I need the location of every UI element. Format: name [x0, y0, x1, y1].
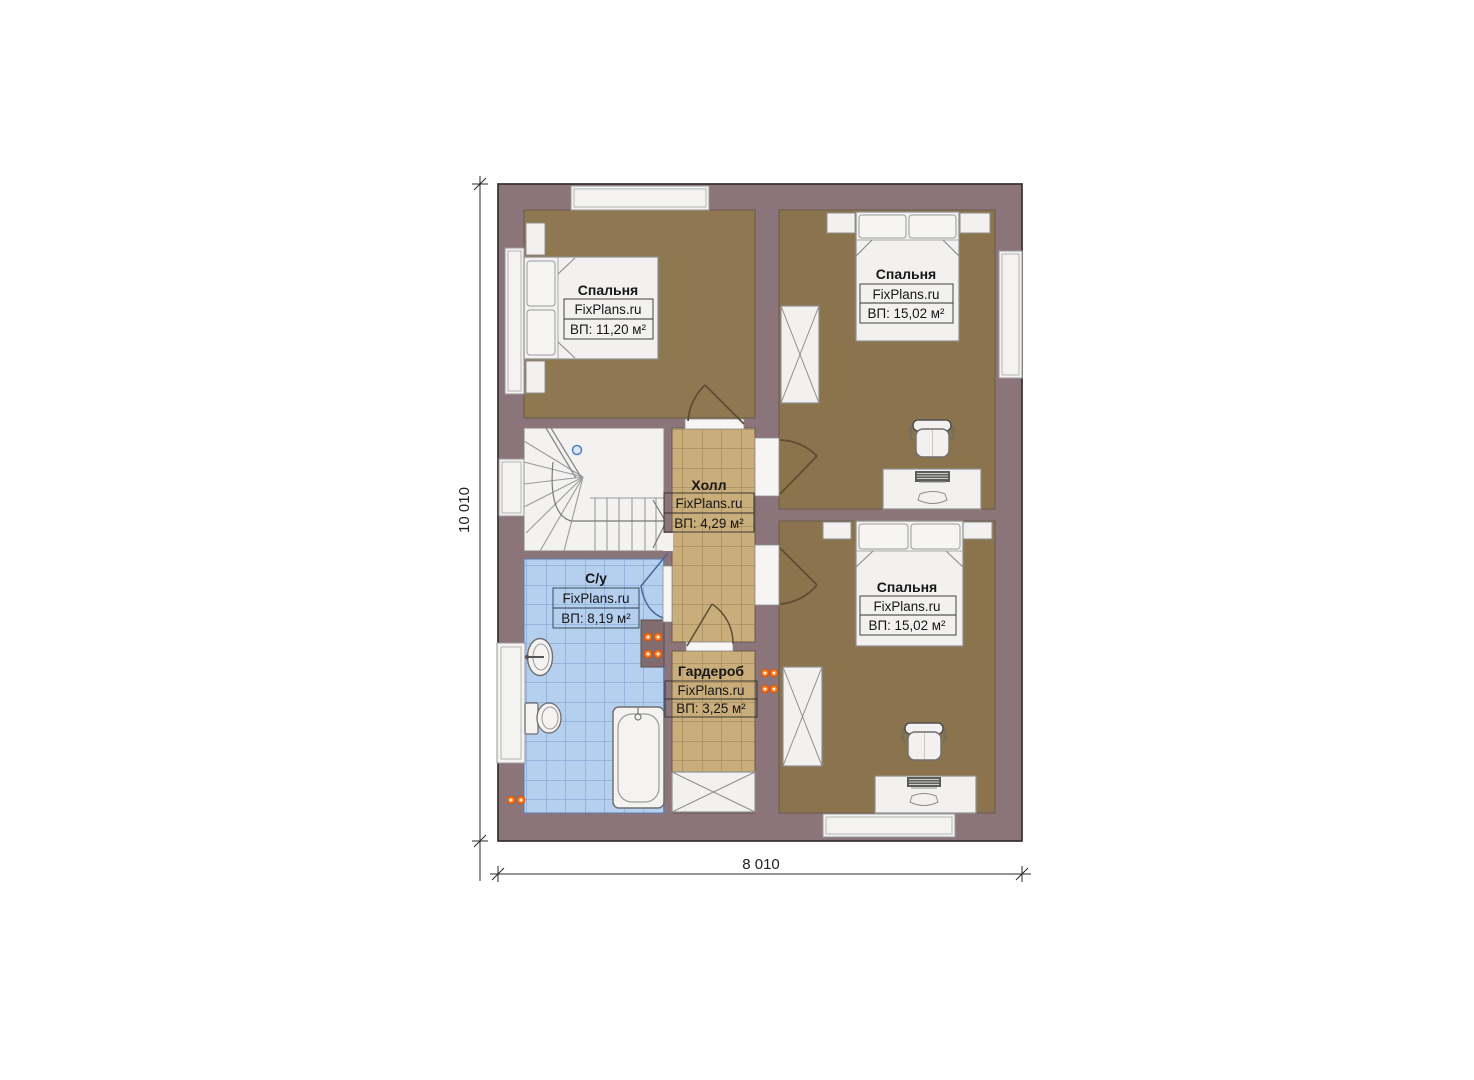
svg-text:Спальня: Спальня [876, 266, 936, 282]
svg-text:Холл: Холл [691, 477, 726, 493]
svg-text:FixPlans.ru: FixPlans.ru [676, 496, 743, 511]
svg-text:ВП: 3,25 м²: ВП: 3,25 м² [676, 701, 746, 716]
svg-text:Гардероб: Гардероб [678, 663, 745, 679]
svg-text:Спальня: Спальня [877, 579, 937, 595]
svg-text:FixPlans.ru: FixPlans.ru [873, 287, 940, 302]
svg-text:С/у: С/у [585, 570, 607, 586]
svg-text:ВП: 8,19 м²: ВП: 8,19 м² [561, 611, 631, 626]
svg-text:FixPlans.ru: FixPlans.ru [874, 599, 941, 614]
svg-text:ВП: 15,02 м²: ВП: 15,02 м² [868, 306, 945, 321]
svg-text:FixPlans.ru: FixPlans.ru [563, 591, 630, 606]
svg-text:ВП: 11,20 м²: ВП: 11,20 м² [570, 322, 646, 337]
svg-text:FixPlans.ru: FixPlans.ru [575, 302, 642, 317]
svg-text:Спальня: Спальня [578, 282, 638, 298]
svg-text:8 010: 8 010 [742, 856, 780, 873]
svg-text:10 010: 10 010 [456, 487, 473, 533]
svg-text:FixPlans.ru: FixPlans.ru [678, 683, 745, 698]
svg-text:ВП: 15,02 м²: ВП: 15,02 м² [869, 618, 946, 633]
svg-text:ВП: 4,29 м²: ВП: 4,29 м² [674, 516, 744, 531]
